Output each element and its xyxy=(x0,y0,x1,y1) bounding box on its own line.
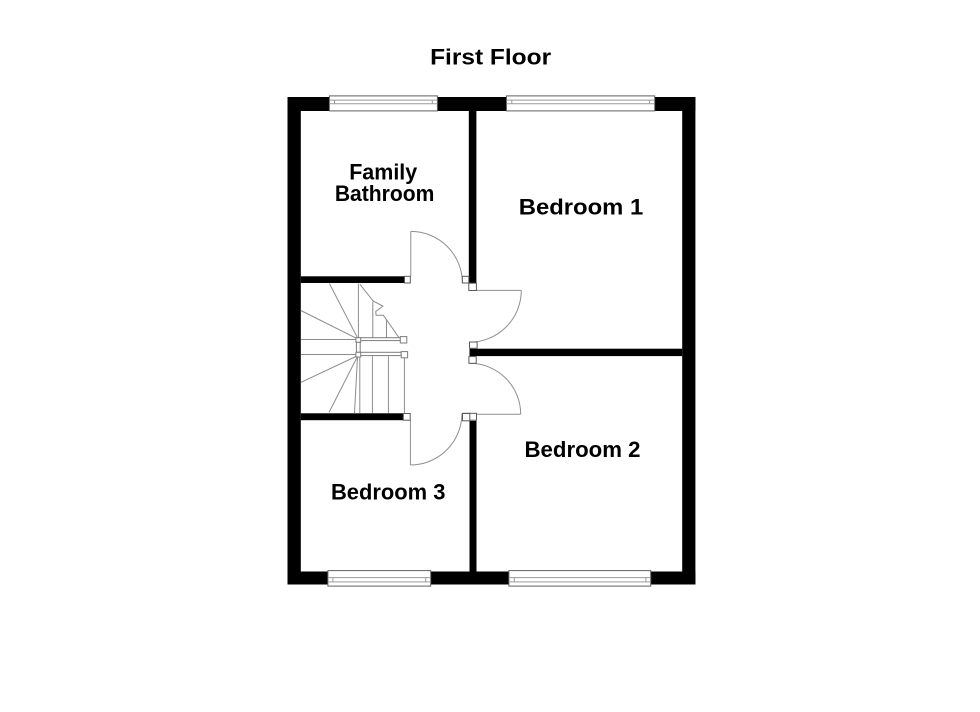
svg-text:Bathroom: Bathroom xyxy=(335,181,435,206)
svg-text:First Floor: First Floor xyxy=(430,45,551,70)
svg-text:Bedroom 1: Bedroom 1 xyxy=(519,195,644,220)
svg-text:Bedroom 2: Bedroom 2 xyxy=(525,437,641,462)
svg-text:Bedroom 3: Bedroom 3 xyxy=(331,479,446,504)
